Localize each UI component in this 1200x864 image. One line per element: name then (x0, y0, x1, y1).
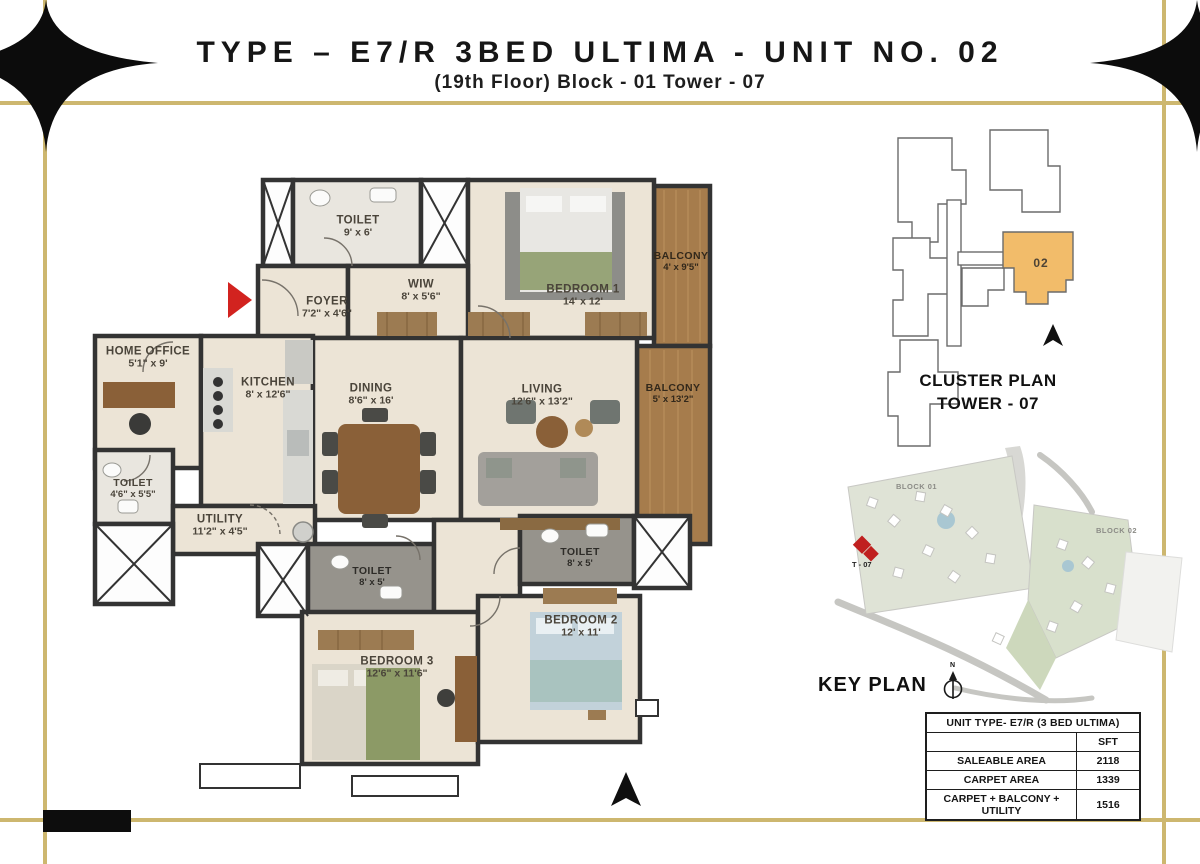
room-label-foyer: FOYER 7'2" x 4'6" (302, 296, 352, 321)
room-label-toilet-4: TOILET 8' x 5' (560, 547, 600, 569)
table-row: CARPET + BALCONY + UTILITY 1516 (926, 790, 1140, 821)
area-table: UNIT TYPE- E7/R (3 BED ULTIMA) SFT SALEA… (925, 712, 1141, 821)
north-arrow-icon (611, 772, 641, 806)
room-label-bedroom-1: BEDROOM 1 14' x 12' (546, 284, 619, 309)
room-label-balcony-mid: BALCONY 5' x 13'2" (646, 383, 701, 405)
room-label-kitchen: KITCHEN 8' x 12'6" (241, 377, 295, 402)
area-table-empty-cell (926, 733, 1077, 752)
room-label-dining: DINING 8'6" x 16' (348, 383, 393, 408)
keyplan-north-icon (945, 671, 962, 699)
keyplan-north-letter: N (950, 662, 955, 669)
floorplan-brochure-page: TYPE – E7/R 3BED ULTIMA - UNIT NO. 02 (1… (0, 0, 1200, 864)
tower-07-label: T - 07 (852, 560, 872, 569)
footer-black-bar (43, 810, 131, 832)
cluster-plan-title: CLUSTER PLAN TOWER - 07 (878, 370, 1098, 416)
room-label-wiw: WIW 8' x 5'6" (401, 279, 440, 304)
block-02-label: BLOCK 02 (1096, 526, 1137, 535)
room-label-toilet-2: TOILET 4'6" x 5'5" (110, 478, 155, 500)
room-label-toilet-1: TOILET 9' x 6' (336, 215, 379, 240)
room-label-utility: UTILITY 11'2" x 4'5" (192, 514, 247, 539)
area-table-header: UNIT TYPE- E7/R (3 BED ULTIMA) (926, 713, 1140, 733)
room-label-living: LIVING 12'6" x 13'2" (511, 384, 573, 409)
entry-arrow-icon (228, 282, 252, 318)
key-plan-title: KEY PLAN (818, 674, 927, 697)
room-label-home-office: HOME OFFICE 5'1" x 9' (106, 346, 190, 371)
cluster-unit-number: 02 (1033, 256, 1048, 270)
table-row: SALEABLE AREA 2118 (926, 752, 1140, 771)
room-label-toilet-3: TOILET 8' x 5' (352, 566, 392, 588)
area-table-unit-column: SFT (1077, 733, 1141, 752)
room-label-bedroom-2: BEDROOM 2 12' x 11' (544, 615, 617, 640)
page-subtitle: (19th Floor) Block - 01 Tower - 07 (0, 72, 1200, 94)
page-title: TYPE – E7/R 3BED ULTIMA - UNIT NO. 02 (0, 36, 1200, 70)
room-label-bedroom-3: BEDROOM 3 12'6" x 11'6" (360, 656, 433, 681)
table-row: CARPET AREA 1339 (926, 771, 1140, 790)
key-plan-drawing (838, 446, 1182, 701)
block-01-label: BLOCK 01 (896, 482, 937, 491)
room-label-balcony-top: BALCONY 4' x 9'5" (654, 251, 709, 273)
